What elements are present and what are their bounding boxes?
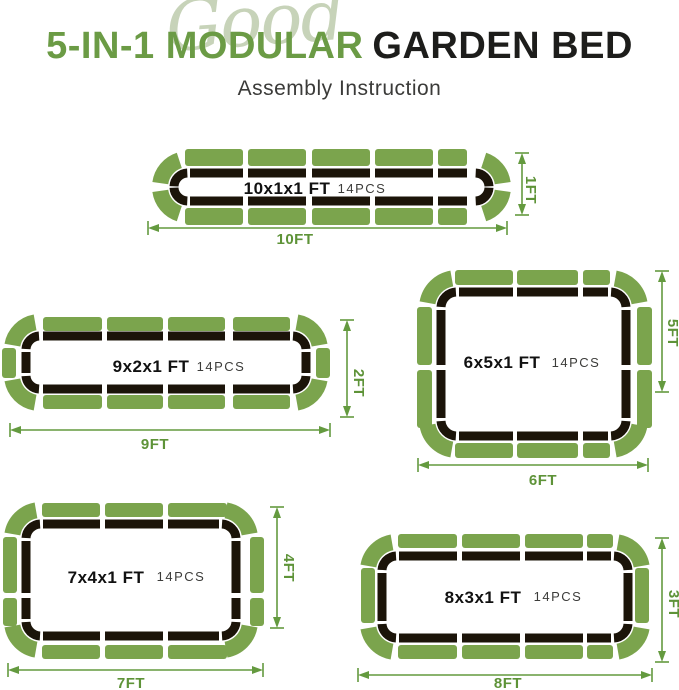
width-dimension-label: 3FT — [665, 590, 679, 618]
pieces-count-label: 14PCS — [197, 359, 246, 374]
bed-outline-corner — [614, 556, 628, 570]
garden-panel — [587, 645, 613, 659]
garden-panel — [583, 443, 610, 458]
bed-outline-corner — [476, 188, 489, 201]
arrowhead-down-icon — [658, 651, 666, 662]
garden-panel — [168, 503, 227, 517]
garden-panel — [517, 270, 578, 285]
garden-panel — [107, 395, 163, 409]
bed-diagram-4: 7x4x1 FT14PCS7FT4FT — [0, 495, 300, 690]
bed-outline-corner — [293, 376, 306, 389]
garden-panel — [462, 534, 520, 548]
pieces-count-label: 14PCS — [338, 181, 387, 196]
bed-outline-corner — [382, 556, 396, 570]
arrowhead-down-icon — [343, 406, 351, 417]
assembly-instruction-page: Good 5-IN-1 MODULARGARDEN BED Assembly I… — [0, 0, 679, 690]
width-dimension-label: 1FT — [522, 176, 539, 204]
arrowhead-right-icon — [319, 426, 330, 434]
garden-panel — [43, 317, 102, 331]
garden-panel — [583, 270, 610, 285]
pieces-count-label: 14PCS — [552, 355, 601, 370]
garden-panel — [250, 537, 264, 593]
bed-diagram-3: 6x5x1 FT14PCS6FT5FT — [400, 258, 679, 490]
garden-panel — [375, 149, 433, 166]
garden-panel — [398, 534, 457, 548]
length-dimension-label: 9FT — [141, 436, 169, 453]
bed-outline-corner — [441, 292, 456, 307]
pieces-count-label: 14PCS — [157, 569, 206, 584]
garden-panel — [637, 370, 652, 428]
garden-panel — [417, 307, 432, 365]
bed-outline-corner — [26, 376, 39, 389]
bed-outline-corner — [26, 524, 40, 538]
garden-panel — [185, 149, 243, 166]
bed-outline-corner — [476, 173, 489, 186]
garden-panel — [3, 598, 17, 626]
bed-outline-corner — [382, 624, 396, 638]
arrowhead-right-icon — [641, 671, 652, 679]
arrowhead-up-icon — [343, 320, 351, 331]
width-dimension-label: 4FT — [280, 554, 297, 582]
title-green-part: 5-IN-1 MODULAR — [46, 25, 363, 67]
width-dimension-label: 5FT — [664, 319, 679, 347]
length-dimension-label: 10FT — [276, 231, 313, 248]
garden-panel — [168, 317, 225, 331]
garden-panel — [105, 645, 163, 659]
bed-size-label: 10x1x1 FT — [244, 179, 331, 198]
arrowhead-right-icon — [637, 461, 648, 469]
bed-outline-corner — [26, 336, 39, 349]
garden-panel — [525, 645, 583, 659]
garden-panel — [417, 370, 432, 428]
garden-panel — [233, 317, 290, 331]
width-dimension-label: 2FT — [350, 369, 367, 397]
garden-panel — [438, 149, 467, 166]
bed-outline-corner — [293, 336, 306, 349]
garden-panel — [361, 568, 375, 623]
bed-outline-corner — [441, 421, 456, 436]
garden-panel — [43, 395, 102, 409]
garden-panel — [42, 503, 100, 517]
garden-panel — [2, 348, 16, 378]
bed-diagram-1: 10x1x1 FT14PCS10FT1FT — [95, 138, 570, 263]
page-title: 5-IN-1 MODULARGARDEN BED — [0, 26, 679, 66]
garden-panel — [107, 317, 163, 331]
pieces-count-label: 14PCS — [534, 589, 583, 604]
garden-panel — [455, 270, 513, 285]
garden-panel — [185, 208, 243, 225]
garden-panel — [438, 208, 467, 225]
arrowhead-left-icon — [418, 461, 429, 469]
bed-outline-corner — [174, 188, 187, 201]
arrowhead-up-icon — [518, 153, 526, 164]
bed-size-label: 7x4x1 FT — [68, 568, 145, 587]
garden-panel — [635, 568, 649, 623]
garden-panel — [637, 307, 652, 365]
garden-panel — [517, 443, 578, 458]
length-dimension-label: 7FT — [117, 675, 145, 690]
garden-panel — [168, 395, 225, 409]
garden-panel — [248, 208, 306, 225]
arrowhead-up-icon — [658, 538, 666, 549]
garden-panel — [312, 149, 370, 166]
page-subtitle: Assembly Instruction — [0, 77, 679, 101]
bed-outline-corner — [611, 421, 626, 436]
title-black-part: GARDEN BED — [372, 25, 632, 67]
bed-outline-corner — [614, 624, 628, 638]
arrowhead-right-icon — [496, 224, 507, 232]
bed-diagrams: 10x1x1 FT14PCS10FT1FT9x2x1 FT14PCS9FT2FT… — [0, 0, 679, 690]
arrowhead-up-icon — [658, 271, 666, 282]
bed-outline-corner — [222, 524, 236, 538]
bed-diagram-2: 9x2x1 FT14PCS9FT2FT — [0, 303, 380, 455]
arrowhead-up-icon — [273, 507, 281, 518]
arrowhead-right-icon — [252, 666, 263, 674]
garden-panel — [42, 645, 100, 659]
arrowhead-down-icon — [518, 204, 526, 215]
arrowhead-left-icon — [148, 224, 159, 232]
arrowhead-down-icon — [658, 381, 666, 392]
garden-panel — [316, 348, 330, 378]
garden-panel — [375, 208, 433, 225]
bed-size-label: 8x3x1 FT — [445, 588, 522, 607]
garden-panel — [587, 534, 613, 548]
garden-panel — [250, 598, 264, 626]
length-dimension-label: 8FT — [494, 675, 522, 690]
bed-outline-corner — [611, 292, 626, 307]
garden-panel — [168, 645, 227, 659]
bed-outline-corner — [174, 173, 187, 186]
arrowhead-down-icon — [273, 617, 281, 628]
length-dimension-label: 6FT — [529, 472, 557, 489]
bed-size-label: 9x2x1 FT — [113, 357, 190, 376]
garden-panel — [312, 208, 370, 225]
arrowhead-left-icon — [8, 666, 19, 674]
garden-panel — [462, 645, 520, 659]
bed-outline-corner — [222, 622, 236, 636]
arrowhead-left-icon — [358, 671, 369, 679]
garden-panel — [233, 395, 290, 409]
bed-outline-corner — [26, 622, 40, 636]
bed-size-label: 6x5x1 FT — [464, 353, 541, 372]
garden-panel — [105, 503, 163, 517]
garden-panel — [3, 537, 17, 593]
garden-panel — [455, 443, 513, 458]
bed-diagram-5: 8x3x1 FT14PCS8FT3FT — [345, 528, 679, 690]
garden-panel — [398, 645, 457, 659]
garden-panel — [525, 534, 583, 548]
arrowhead-left-icon — [10, 426, 21, 434]
garden-panel — [248, 149, 306, 166]
